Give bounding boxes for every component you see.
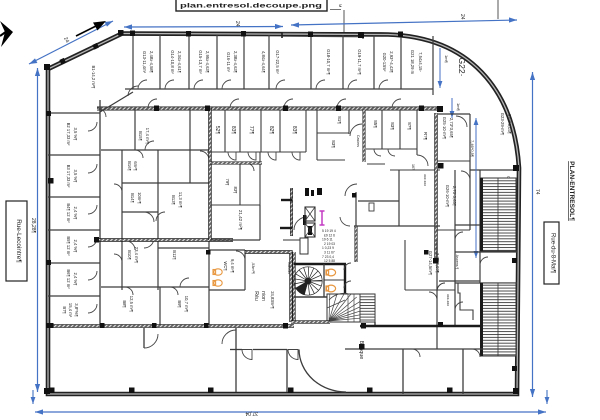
svg-text:7,46*0,9¶: 7,46*0,9¶ — [470, 140, 475, 157]
svg-text:B9¶: B9¶ — [177, 300, 182, 308]
svg-text:B3 17,33 m²: B3 17,33 m² — [66, 165, 71, 188]
svg-text:15,4 m²: 15,4 m² — [68, 303, 73, 318]
svg-text:G18-10,7 m²¶: G18-10,7 m²¶ — [326, 49, 331, 76]
svg-text:B10¶: B10¶ — [127, 250, 132, 260]
svg-text:G21 18,29 m: G21 18,29 m — [410, 50, 415, 75]
svg-text:R?¶: R?¶ — [423, 132, 428, 141]
svg-text:16?: 16? — [411, 164, 415, 170]
svg-text:3,5 %¶: 3,5 %¶ — [73, 170, 78, 184]
svg-text:B7¶: B7¶ — [62, 306, 67, 314]
svg-text:83¶: 83¶ — [230, 126, 236, 135]
svg-text:2,38x-4,63¶: 2,38x-4,63¶ — [233, 51, 238, 74]
svg-text:2,95x-4,63¶: 2,95x-4,63¶ — [205, 51, 210, 74]
svg-text:G23-29-m²¶: G23-29-m²¶ — [500, 113, 505, 136]
svg-text:6m²¶: 6m²¶ — [133, 161, 138, 171]
svg-text:xxx xxx: xxx xxx — [423, 174, 427, 186]
svg-text:G20-13m²: G20-13m² — [382, 53, 387, 72]
svg-text:24,83m²¶: 24,83m²¶ — [270, 291, 275, 309]
svg-text:nion: nion — [260, 291, 266, 301]
svg-text:2,34x-4,61¶: 2,34x-4,61¶ — [177, 51, 182, 74]
svg-text:plan.entresol.decoupe.png: plan.entresol.decoupe.png — [180, 3, 322, 10]
svg-text:B5¶ 12 m²: B5¶ 12 m² — [66, 236, 71, 256]
svg-text:B1-14,2 m²¶: B1-14,2 m²¶ — [91, 66, 96, 90]
svg-text:12 5 88: 12 5 88 — [324, 259, 335, 263]
svg-text:B8¶: B8¶ — [122, 300, 127, 308]
svg-text:Rue-Lecointre¶: Rue-Lecointre¶ — [15, 219, 22, 263]
svg-text:B11¶: B11¶ — [172, 250, 177, 260]
svg-text:8?¶: 8?¶ — [407, 122, 412, 130]
svg-text:G13-11,4m²: G13-11,4m² — [142, 51, 147, 74]
svg-text:83¶: 83¶ — [331, 140, 336, 148]
svg-text:Rue-du-8-Mai¶: Rue-du-8-Mai¶ — [550, 233, 556, 273]
svg-text:B2 17,33 m²: B2 17,33 m² — [66, 123, 71, 146]
svg-text:G22·: G22· — [457, 57, 467, 76]
svg-text:G17-22,5 m²: G17-22,5 m² — [275, 50, 280, 74]
svg-text:85¶: 85¶ — [373, 120, 378, 128]
svg-text:G15-13,7 m²: G15-13,7 m² — [198, 50, 203, 74]
svg-text:B16¶: B16¶ — [127, 161, 132, 171]
svg-text:82¶: 82¶ — [268, 126, 274, 135]
svg-text:B14¶: B14¶ — [130, 193, 135, 203]
svg-text:B15¶: B15¶ — [138, 131, 143, 141]
svg-text:2,4 %¶: 2,4 %¶ — [73, 240, 78, 254]
svg-text:2,48x-4,58¶: 2,48x-4,58¶ — [149, 51, 154, 74]
svg-text:77¶: 77¶ — [248, 126, 254, 135]
svg-text:2,4 %¶: 2,4 %¶ — [73, 273, 78, 287]
svg-text:21,42 m²¶: 21,42 m²¶ — [238, 210, 243, 231]
svg-text:Réu: Réu — [253, 291, 259, 301]
svg-text:2,4 %¶: 2,4 %¶ — [73, 207, 78, 221]
svg-text:83¶: 83¶ — [291, 126, 297, 135]
svg-text:1m¶: 1m¶ — [444, 55, 449, 63]
svg-text:PLAN-ENTRESOL¶: PLAN-ENTRESOL¶ — [568, 161, 575, 221]
svg-text:B6¶ 12 m²: B6¶ 12 m² — [66, 269, 71, 289]
svg-text:10,7 m²¶: 10,7 m²¶ — [184, 296, 189, 313]
svg-text:83¶: 83¶ — [233, 187, 238, 195]
svg-text:,53m²¶: ,53m²¶ — [251, 262, 255, 274]
svg-text:7,54x4,15-: 7,54x4,15- — [418, 52, 423, 72]
svg-text:G16-11 m²: G16-11 m² — [226, 52, 231, 72]
svg-text:10m²¶: 10m²¶ — [137, 192, 142, 205]
svg-text:37,04: 37,04 — [245, 410, 258, 416]
svg-text:9,4 m²¶: 9,4 m²¶ — [230, 259, 235, 274]
svg-text:2,93*-4,43¶: 2,93*-4,43¶ — [389, 51, 394, 73]
svg-text:24: 24 — [459, 14, 465, 20]
svg-text:4,84x-4,64¶: 4,84x-4,64¶ — [261, 51, 266, 74]
svg-text:24: 24 — [234, 21, 240, 27]
svg-text:11,3 m²¶: 11,3 m²¶ — [178, 192, 183, 209]
svg-text:12,5 m²¶: 12,5 m²¶ — [129, 296, 134, 313]
svg-text:G26-10-m²¶: G26-10-m²¶ — [445, 185, 450, 208]
svg-text:Casiers: Casiers — [356, 135, 360, 147]
svg-text:G25·10·m²¶: G25·10·m²¶ — [442, 117, 447, 140]
svg-text:81¶: 81¶ — [337, 116, 342, 124]
svg-text:3,8*%¶: 3,8*%¶ — [74, 303, 79, 317]
svg-text:G14-10,8 m²: G14-10,8 m² — [170, 50, 175, 74]
svg-text:2,73*3,65¶: 2,73*3,65¶ — [449, 118, 454, 139]
svg-text:6,64*3,03¶: 6,64*3,03¶ — [507, 114, 512, 135]
svg-text:1m¶: 1m¶ — [456, 103, 461, 111]
svg-text:28,28¶: 28,28¶ — [30, 218, 36, 234]
svg-text:G19-11,7 m²¶: G19-11,7 m²¶ — [357, 49, 362, 75]
svg-text:xxx-xxx: xxx-xxx — [446, 294, 450, 306]
svg-text:Banque: Banque — [358, 341, 364, 360]
svg-text:52¶: 52¶ — [214, 126, 220, 135]
svg-text:G27-14,5m²¶: G27-14,5m²¶ — [428, 251, 433, 276]
svg-text:79¶: 79¶ — [225, 179, 230, 187]
svg-text:M: M — [338, 4, 343, 7]
svg-text:B13¶: B13¶ — [171, 195, 176, 205]
svg-text:WC¶: WC¶ — [223, 261, 228, 271]
svg-text:B4¶ 12 m²: B4¶ 12 m² — [66, 203, 71, 223]
svg-text:74: 74 — [534, 189, 540, 195]
svg-text:Ascens.¶: Ascens.¶ — [455, 255, 459, 270]
svg-text:3,5 %¶: 3,5 %¶ — [73, 128, 78, 142]
svg-text:83¶: 83¶ — [390, 122, 395, 130]
